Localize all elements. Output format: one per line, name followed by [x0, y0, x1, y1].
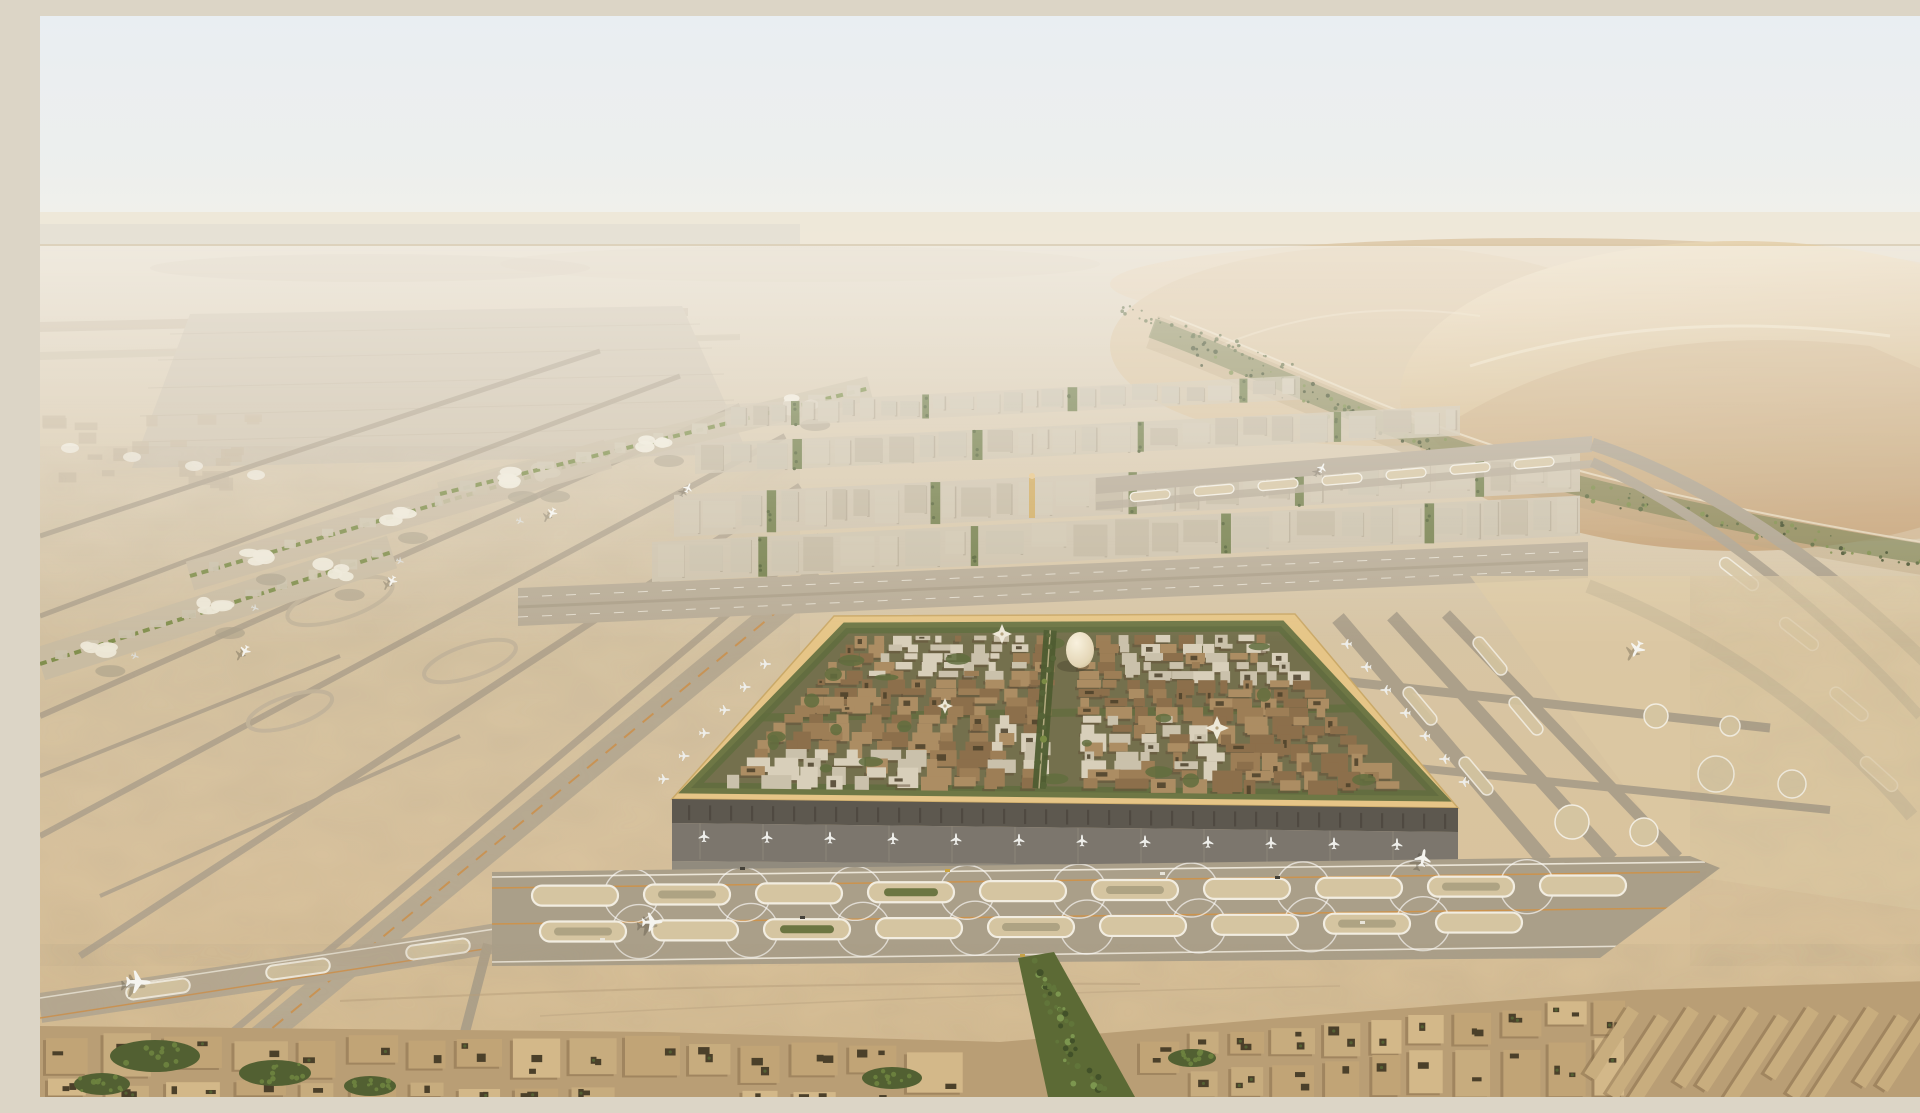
warm-tint-overlay [40, 16, 1920, 1097]
aerial-render: High aerial rendering of a vast airport … [40, 16, 1920, 1097]
scene-svg [40, 16, 1920, 1097]
